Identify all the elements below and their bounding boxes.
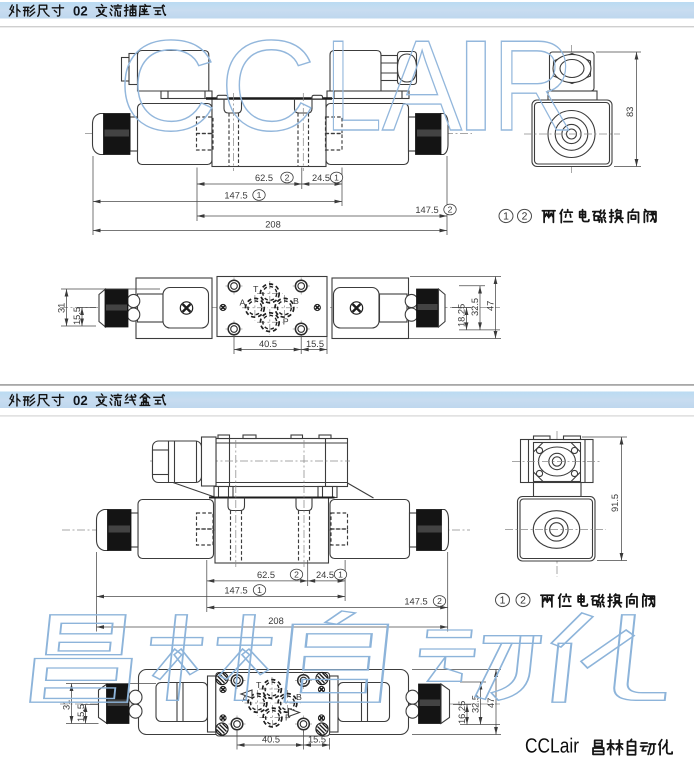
svg-text:C: C	[118, 14, 217, 158]
svg-text:02: 02	[73, 4, 88, 19]
svg-text:C: C	[220, 14, 316, 158]
svg-text:T: T	[253, 284, 259, 294]
svg-text:B: B	[293, 296, 299, 306]
svg-text:91.5: 91.5	[610, 494, 620, 512]
svg-text:A: A	[382, 14, 462, 158]
svg-text:L: L	[325, 14, 382, 158]
svg-text:40.5: 40.5	[259, 339, 277, 349]
svg-text:147.5: 147.5	[224, 586, 247, 596]
svg-text:15.5: 15.5	[76, 704, 86, 722]
svg-text:P: P	[283, 317, 289, 327]
svg-text:62.5: 62.5	[257, 570, 275, 580]
svg-text:31: 31	[62, 700, 72, 710]
svg-text:T: T	[256, 680, 262, 690]
svg-text:15.5: 15.5	[72, 307, 82, 325]
svg-text:147.5: 147.5	[404, 597, 427, 607]
svg-text:R: R	[492, 14, 574, 158]
svg-text:147.5: 147.5	[224, 191, 247, 201]
svg-text:B: B	[296, 692, 302, 702]
svg-text:A: A	[240, 298, 246, 308]
svg-text:CCLair: CCLair	[525, 735, 579, 758]
svg-text:24.5: 24.5	[316, 570, 334, 580]
svg-text:47: 47	[486, 698, 496, 708]
svg-text:31: 31	[57, 303, 67, 313]
svg-text:208: 208	[268, 616, 284, 626]
svg-text:147.5: 147.5	[415, 205, 438, 215]
svg-text:02: 02	[73, 393, 88, 408]
svg-text:47: 47	[486, 301, 496, 311]
svg-text:15.5: 15.5	[306, 339, 324, 349]
svg-text:83: 83	[625, 107, 635, 117]
svg-text:24.5: 24.5	[312, 173, 330, 183]
svg-text:16.25: 16.25	[457, 701, 467, 724]
svg-text:18.25: 18.25	[457, 304, 467, 327]
svg-text:32.5: 32.5	[470, 298, 480, 316]
svg-text:15.5: 15.5	[308, 735, 326, 745]
svg-text:208: 208	[265, 220, 281, 230]
svg-text:40.5: 40.5	[262, 735, 280, 745]
svg-text:62.5: 62.5	[255, 173, 273, 183]
svg-text:I: I	[458, 14, 494, 158]
